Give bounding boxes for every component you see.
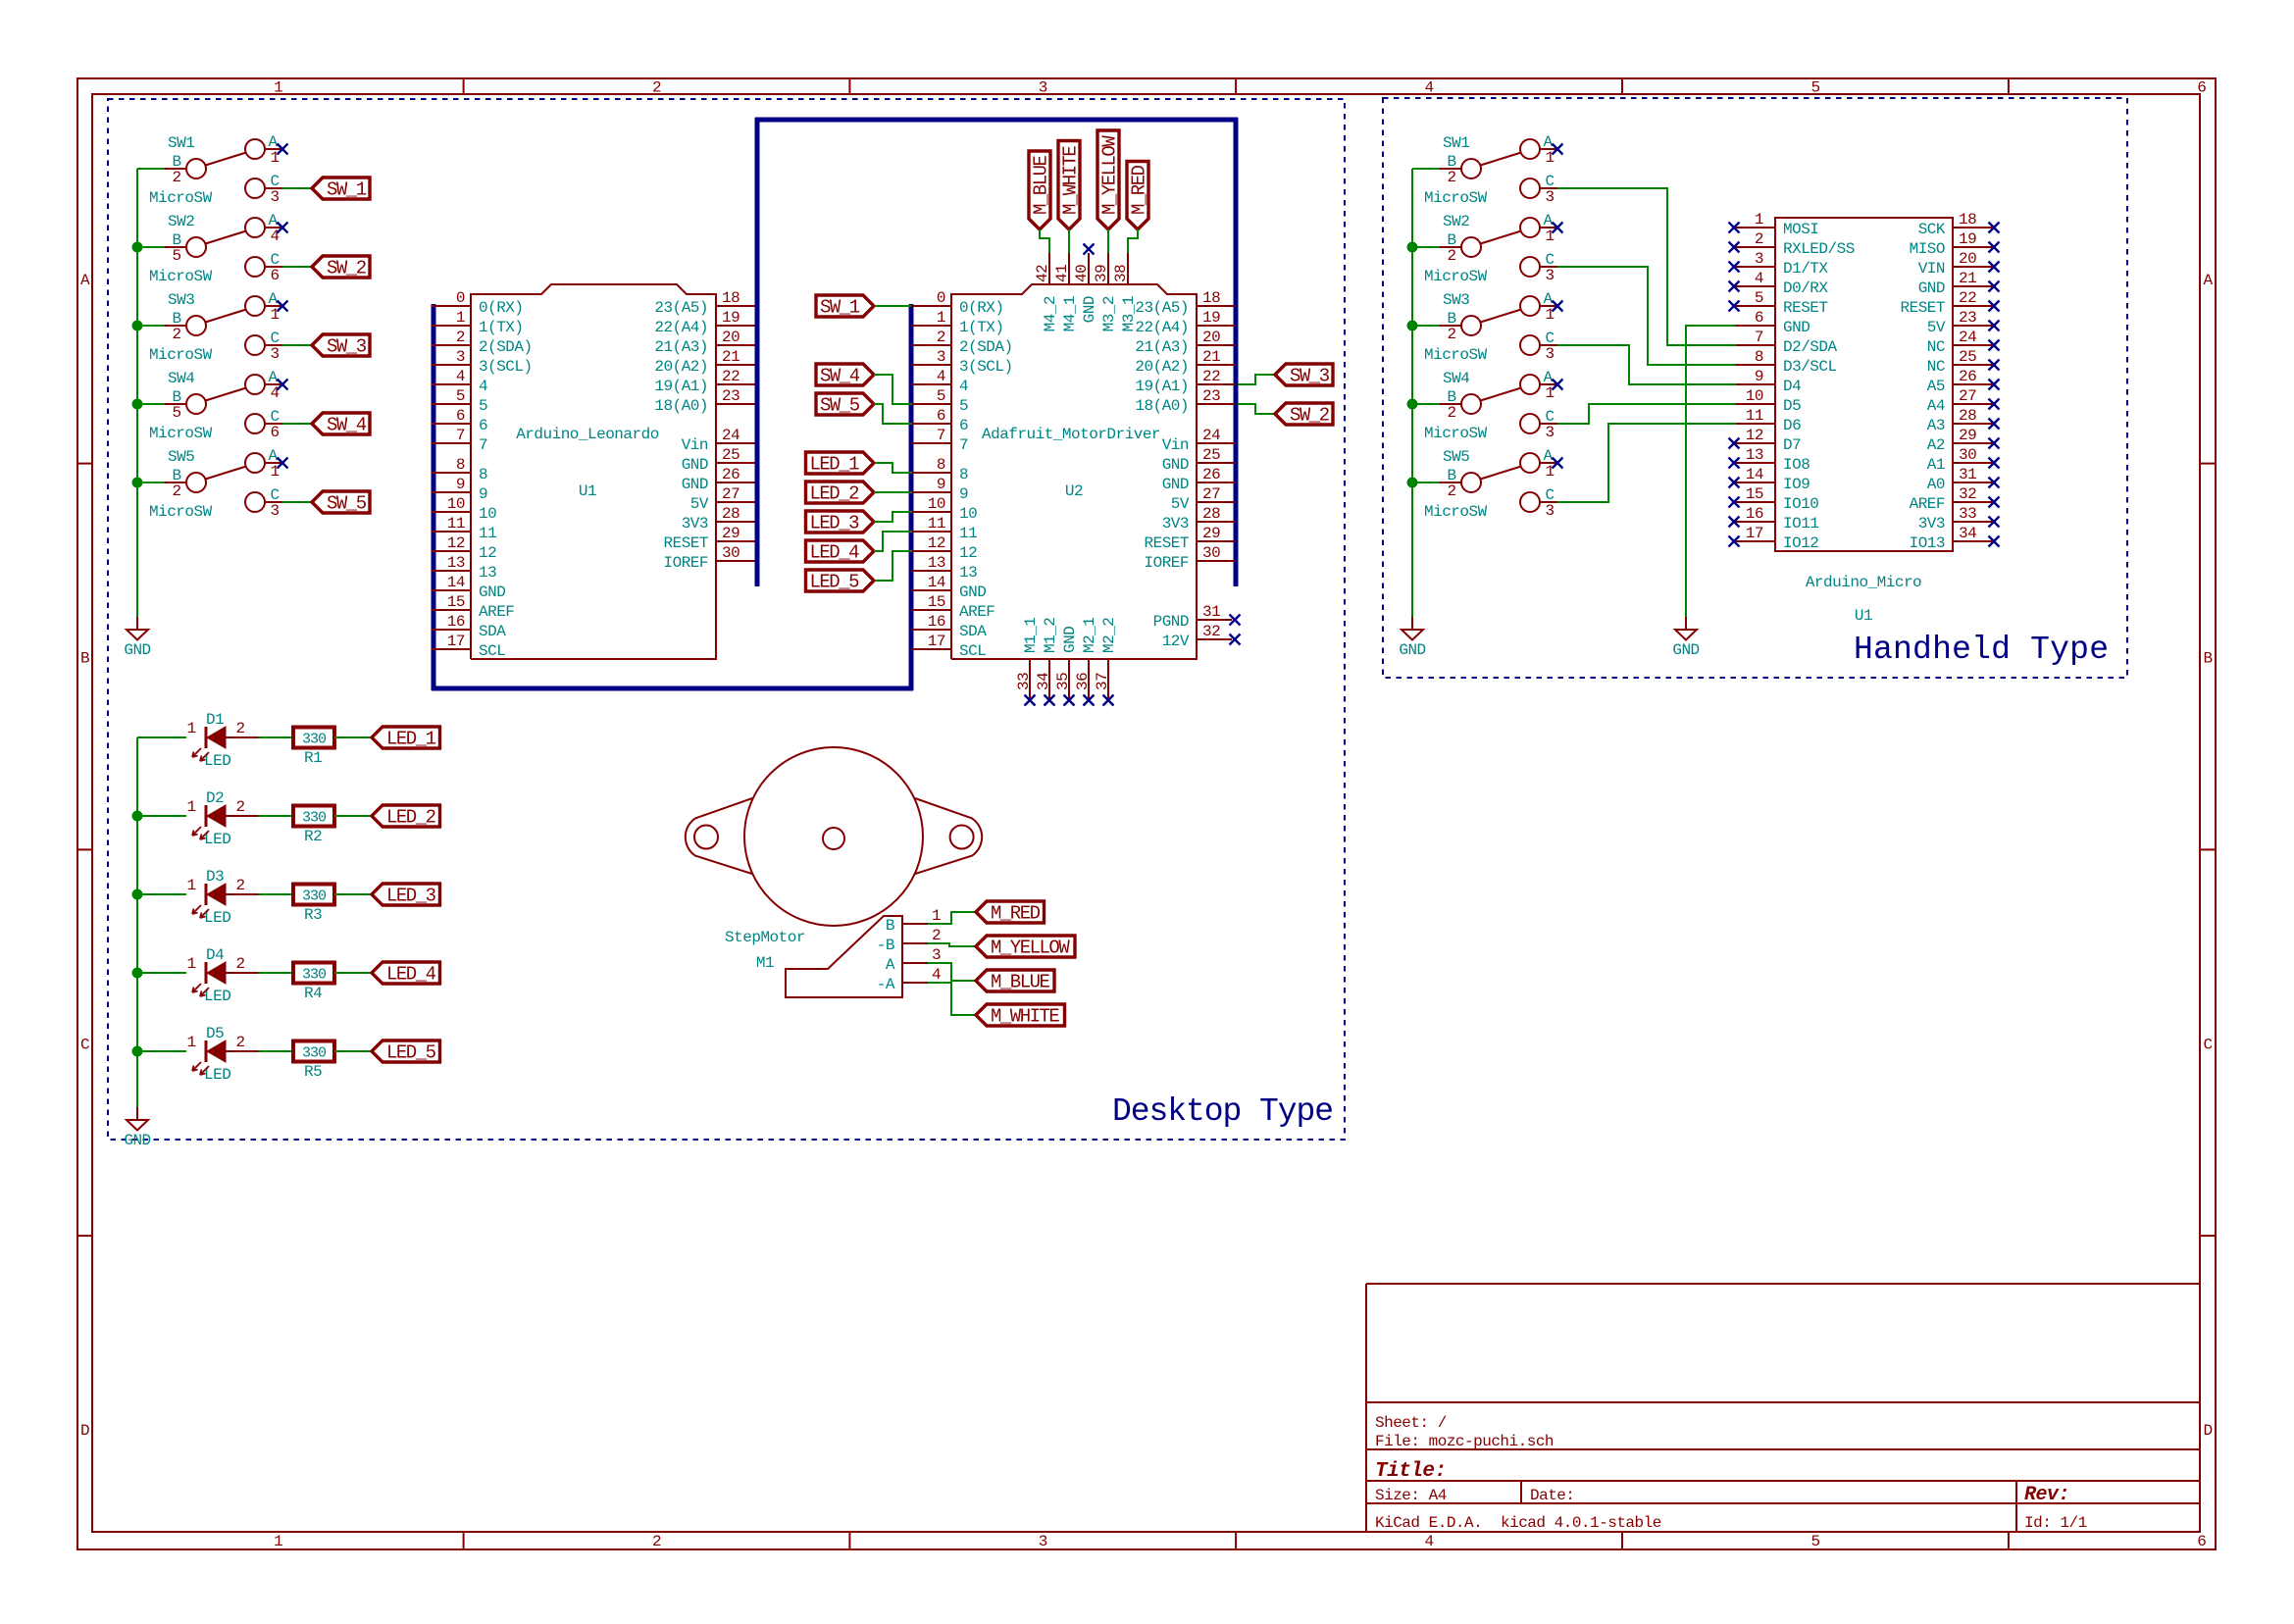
svg-text:SW1: SW1: [168, 134, 194, 152]
svg-text:3: 3: [270, 188, 279, 206]
svg-text:GND: GND: [682, 476, 708, 493]
svg-text:3: 3: [1545, 345, 1554, 363]
svg-text:SW5: SW5: [168, 448, 194, 466]
svg-text:SCK: SCK: [1918, 221, 1946, 238]
svg-text:D6: D6: [1783, 417, 1801, 434]
svg-text:A: A: [80, 272, 90, 289]
svg-text:8: 8: [456, 456, 465, 474]
svg-text:RESET: RESET: [663, 534, 708, 552]
svg-text:KiCad E.D.A.: KiCad E.D.A.: [1375, 1514, 1482, 1532]
svg-text:VIN: VIN: [1918, 260, 1945, 278]
svg-text:Id: 1/1: Id: 1/1: [2024, 1514, 2087, 1532]
svg-text:3(SCL): 3(SCL): [959, 358, 1013, 376]
svg-text:Desktop Type: Desktop Type: [1112, 1093, 1334, 1130]
svg-text:D0/RX: D0/RX: [1783, 279, 1828, 297]
svg-text:5: 5: [937, 387, 945, 405]
svg-text:R4: R4: [304, 985, 322, 1002]
svg-text:M_BLUE: M_BLUE: [1031, 155, 1052, 215]
svg-text:NC: NC: [1927, 358, 1945, 376]
svg-text:12V: 12V: [1162, 633, 1190, 650]
svg-text:38: 38: [1112, 265, 1130, 282]
svg-text:D7: D7: [1783, 436, 1801, 454]
svg-text:D5: D5: [206, 1025, 224, 1042]
svg-text:5: 5: [959, 397, 968, 415]
svg-text:26: 26: [1959, 368, 1976, 385]
svg-text:32: 32: [1959, 485, 1976, 503]
svg-text:26: 26: [722, 466, 739, 483]
svg-text:IO10: IO10: [1783, 495, 1818, 513]
svg-text:2: 2: [1447, 247, 1455, 265]
svg-text:0: 0: [456, 289, 465, 307]
svg-text:LED_3: LED_3: [810, 513, 860, 534]
svg-text:GND: GND: [682, 456, 708, 474]
svg-text:25: 25: [722, 446, 739, 464]
svg-text:GND: GND: [1061, 627, 1079, 653]
svg-text:GND: GND: [1918, 279, 1945, 297]
svg-text:0(RX): 0(RX): [959, 299, 1004, 317]
svg-text:13: 13: [447, 554, 465, 572]
svg-text:SW3: SW3: [168, 291, 194, 309]
svg-text:LED_1: LED_1: [810, 454, 860, 476]
svg-text:M_YELLOW: M_YELLOW: [1099, 135, 1121, 215]
svg-text:11: 11: [447, 515, 465, 533]
svg-text:SW_5: SW_5: [820, 395, 860, 417]
svg-text:42: 42: [1034, 265, 1051, 282]
svg-text:GND: GND: [479, 584, 505, 601]
svg-text:SW5: SW5: [1443, 448, 1469, 466]
svg-text:18: 18: [1202, 289, 1220, 307]
svg-text:D5: D5: [1783, 397, 1801, 415]
svg-text:22(A4): 22(A4): [1135, 319, 1189, 336]
svg-text:3: 3: [1039, 79, 1047, 97]
svg-text:23: 23: [1202, 387, 1220, 405]
svg-text:D4: D4: [206, 946, 224, 964]
svg-text:22(A4): 22(A4): [654, 319, 708, 336]
svg-text:30: 30: [1202, 544, 1220, 562]
svg-text:7: 7: [456, 427, 465, 444]
svg-text:5: 5: [172, 247, 180, 265]
svg-text:6: 6: [959, 417, 968, 434]
svg-text:M_WHITE: M_WHITE: [1060, 146, 1082, 215]
svg-text:6: 6: [479, 417, 487, 434]
svg-text:2: 2: [235, 955, 244, 973]
svg-text:1: 1: [274, 79, 282, 97]
svg-text:34: 34: [1035, 673, 1052, 690]
svg-text:R5: R5: [304, 1063, 322, 1081]
svg-text:Arduino_Micro: Arduino_Micro: [1806, 574, 1921, 591]
svg-text:Title:: Title:: [1375, 1460, 1447, 1483]
svg-text:LED: LED: [204, 1066, 230, 1084]
svg-text:19: 19: [1959, 230, 1976, 248]
svg-text:14: 14: [928, 574, 945, 591]
svg-text:4: 4: [479, 378, 487, 395]
svg-text:5: 5: [479, 397, 487, 415]
svg-text:U1: U1: [579, 482, 596, 500]
svg-text:M1_2: M1_2: [1042, 618, 1059, 653]
svg-text:MicroSW: MicroSW: [1424, 189, 1488, 207]
svg-text:SW3: SW3: [1443, 291, 1469, 309]
svg-text:21(A3): 21(A3): [1135, 338, 1189, 356]
svg-text:M1_1: M1_1: [1022, 618, 1040, 653]
svg-text:36: 36: [1074, 673, 1092, 690]
svg-text:31: 31: [1202, 603, 1220, 621]
svg-text:U2: U2: [1065, 482, 1083, 500]
svg-text:19(A1): 19(A1): [654, 378, 708, 395]
svg-text:IO8: IO8: [1783, 456, 1810, 474]
svg-text:LED_1: LED_1: [386, 729, 436, 750]
svg-text:2: 2: [937, 329, 945, 346]
svg-text:39: 39: [1093, 265, 1110, 282]
svg-text:6: 6: [1755, 309, 1763, 327]
svg-text:13: 13: [479, 564, 496, 582]
svg-text:MOSI: MOSI: [1783, 221, 1818, 238]
svg-text:GND: GND: [1399, 641, 1425, 659]
svg-text:IO12: IO12: [1783, 534, 1818, 552]
svg-text:4: 4: [456, 368, 465, 385]
svg-text:2: 2: [932, 927, 941, 944]
svg-text:LED_4: LED_4: [810, 542, 860, 564]
svg-text:18: 18: [1959, 211, 1976, 228]
svg-text:1: 1: [186, 877, 195, 894]
svg-text:RESET: RESET: [1783, 299, 1828, 317]
svg-text:SW2: SW2: [168, 213, 194, 230]
svg-text:M4_2: M4_2: [1042, 296, 1059, 331]
svg-text:MicroSW: MicroSW: [1424, 425, 1488, 442]
svg-text:5: 5: [456, 387, 465, 405]
svg-text:8: 8: [937, 456, 945, 474]
svg-text:SDA: SDA: [959, 623, 987, 640]
svg-text:1: 1: [1545, 228, 1554, 245]
svg-text:3: 3: [456, 348, 465, 366]
svg-text:13: 13: [928, 554, 945, 572]
svg-text:4: 4: [270, 384, 279, 402]
svg-text:19(A1): 19(A1): [1135, 378, 1189, 395]
svg-text:LED_2: LED_2: [386, 807, 436, 829]
svg-text:12: 12: [928, 534, 945, 552]
svg-text:6: 6: [2197, 1533, 2206, 1550]
svg-text:1: 1: [270, 149, 279, 167]
svg-text:-A: -A: [877, 976, 895, 993]
svg-text:12: 12: [1746, 427, 1763, 444]
svg-text:1: 1: [1545, 463, 1554, 481]
svg-text:M_YELLOW: M_YELLOW: [991, 938, 1070, 959]
svg-text:MicroSW: MicroSW: [1424, 346, 1488, 364]
svg-text:19: 19: [722, 309, 739, 327]
svg-text:D1/TX: D1/TX: [1783, 260, 1828, 278]
svg-text:1: 1: [270, 463, 279, 481]
svg-text:2: 2: [456, 329, 465, 346]
svg-text:34: 34: [1959, 525, 1976, 542]
svg-text:0(RX): 0(RX): [479, 299, 524, 317]
svg-text:8: 8: [959, 466, 968, 483]
svg-text:2: 2: [1447, 404, 1455, 422]
svg-text:25: 25: [1959, 348, 1976, 366]
svg-text:17: 17: [1746, 525, 1763, 542]
svg-text:18(A0): 18(A0): [654, 397, 708, 415]
svg-text:Adafruit_MotorDriver: Adafruit_MotorDriver: [982, 426, 1160, 443]
svg-text:MicroSW: MicroSW: [149, 189, 213, 207]
svg-text:A4: A4: [1927, 397, 1945, 415]
svg-text:M_BLUE: M_BLUE: [991, 972, 1050, 993]
svg-text:3: 3: [1545, 424, 1554, 441]
svg-text:LED_4: LED_4: [386, 964, 436, 986]
svg-text:D: D: [2203, 1422, 2212, 1440]
svg-text:kicad 4.0.1-stable: kicad 4.0.1-stable: [1501, 1514, 1661, 1532]
svg-text:IO11: IO11: [1783, 515, 1818, 533]
svg-text:20(A2): 20(A2): [1135, 358, 1189, 376]
svg-text:330: 330: [302, 810, 327, 827]
svg-text:9: 9: [937, 476, 945, 493]
svg-text:R1: R1: [304, 749, 322, 767]
svg-text:22: 22: [1959, 289, 1976, 307]
svg-text:SW_2: SW_2: [327, 258, 367, 279]
svg-text:StepMotor: StepMotor: [725, 929, 805, 946]
svg-text:Sheet: /: Sheet: /: [1375, 1414, 1447, 1432]
svg-text:4: 4: [1425, 79, 1434, 97]
svg-text:21: 21: [1202, 348, 1220, 366]
svg-text:1: 1: [270, 306, 279, 324]
svg-text:3V3: 3V3: [1162, 515, 1189, 533]
svg-text:3: 3: [1545, 267, 1554, 284]
svg-text:19: 19: [1202, 309, 1220, 327]
svg-text:2: 2: [1447, 169, 1455, 186]
svg-text:A1: A1: [1927, 456, 1945, 474]
svg-text:D1: D1: [206, 711, 224, 729]
svg-text:LED: LED: [204, 909, 230, 927]
svg-text:33: 33: [1959, 505, 1976, 523]
svg-text:10: 10: [479, 505, 496, 523]
svg-text:11: 11: [479, 525, 496, 542]
svg-text:LED: LED: [204, 988, 230, 1005]
svg-text:5: 5: [1755, 289, 1763, 307]
svg-text:3V3: 3V3: [1918, 515, 1945, 533]
svg-text:4: 4: [270, 228, 279, 245]
svg-text:5: 5: [1810, 79, 1819, 97]
svg-text:SW1: SW1: [1443, 134, 1469, 152]
svg-text:7: 7: [479, 436, 487, 454]
svg-text:2: 2: [1755, 230, 1763, 248]
svg-text:M3_1: M3_1: [1120, 296, 1138, 331]
svg-text:A: A: [2203, 272, 2213, 289]
svg-text:2: 2: [1447, 482, 1455, 500]
svg-text:14: 14: [447, 574, 465, 591]
svg-text:5V: 5V: [690, 495, 709, 513]
svg-text:24: 24: [722, 427, 739, 444]
svg-text:GND: GND: [1672, 641, 1699, 659]
svg-text:M1: M1: [756, 954, 774, 972]
svg-text:AREF: AREF: [479, 603, 514, 621]
svg-text:3: 3: [932, 946, 941, 964]
svg-text:Rev:: Rev:: [2024, 1484, 2069, 1506]
svg-text:M_RED: M_RED: [991, 903, 1041, 925]
svg-text:22: 22: [722, 368, 739, 385]
svg-text:3: 3: [1039, 1533, 1047, 1550]
svg-text:7: 7: [937, 427, 945, 444]
svg-text:GND: GND: [124, 641, 150, 659]
svg-text:M3_2: M3_2: [1100, 296, 1118, 331]
svg-text:MicroSW: MicroSW: [149, 346, 213, 364]
svg-text:32: 32: [1202, 623, 1220, 640]
svg-text:6: 6: [270, 424, 279, 441]
svg-text:SW_2: SW_2: [1290, 405, 1330, 427]
svg-text:Date:: Date:: [1530, 1487, 1575, 1504]
svg-text:1: 1: [274, 1533, 282, 1550]
svg-text:M_WHITE: M_WHITE: [991, 1006, 1059, 1028]
svg-text:M_RED: M_RED: [1129, 165, 1150, 215]
svg-text:2(SDA): 2(SDA): [479, 338, 533, 356]
svg-text:MicroSW: MicroSW: [149, 425, 213, 442]
svg-text:20: 20: [1202, 329, 1220, 346]
svg-text:10: 10: [959, 505, 977, 523]
svg-text:16: 16: [928, 613, 945, 631]
svg-text:SCL: SCL: [479, 642, 505, 660]
svg-text:11: 11: [959, 525, 977, 542]
svg-text:0: 0: [937, 289, 945, 307]
svg-text:11: 11: [1746, 407, 1763, 425]
svg-text:-B: -B: [877, 937, 894, 954]
svg-text:3: 3: [270, 502, 279, 520]
svg-text:1: 1: [1545, 306, 1554, 324]
svg-text:RESET: RESET: [1900, 299, 1945, 317]
svg-text:SW_3: SW_3: [327, 336, 367, 358]
svg-text:Vin: Vin: [1162, 436, 1189, 454]
svg-text:GND: GND: [1081, 296, 1098, 323]
svg-text:A5: A5: [1927, 378, 1945, 395]
svg-text:4: 4: [1755, 270, 1763, 287]
svg-text:GND: GND: [1162, 476, 1189, 493]
svg-text:PGND: PGND: [1153, 613, 1189, 631]
svg-text:1: 1: [1545, 384, 1554, 402]
svg-text:3: 3: [1545, 502, 1554, 520]
svg-text:A3: A3: [1927, 417, 1945, 434]
svg-text:23: 23: [1959, 309, 1976, 327]
svg-text:330: 330: [302, 967, 327, 984]
svg-text:SCL: SCL: [959, 642, 986, 660]
svg-text:12: 12: [959, 544, 977, 562]
svg-text:B: B: [80, 650, 89, 668]
svg-text:A0: A0: [1927, 476, 1945, 493]
svg-text:17: 17: [928, 633, 945, 650]
svg-text:330: 330: [302, 732, 327, 748]
svg-text:LED: LED: [204, 752, 230, 770]
svg-text:D: D: [80, 1422, 89, 1440]
svg-text:SW_1: SW_1: [327, 179, 367, 201]
svg-text:30: 30: [722, 544, 739, 562]
svg-text:28: 28: [722, 505, 739, 523]
svg-text:LED_3: LED_3: [386, 886, 436, 907]
svg-text:18(A0): 18(A0): [1135, 397, 1189, 415]
svg-text:IO13: IO13: [1910, 534, 1945, 552]
svg-text:U1: U1: [1855, 607, 1872, 625]
svg-text:15: 15: [1746, 485, 1763, 503]
svg-text:30: 30: [1959, 446, 1976, 464]
svg-text:23(A5): 23(A5): [1135, 299, 1189, 317]
svg-text:27: 27: [1959, 387, 1976, 405]
svg-text:SW_4: SW_4: [327, 415, 367, 436]
svg-text:21(A3): 21(A3): [654, 338, 708, 356]
svg-text:4: 4: [937, 368, 945, 385]
svg-text:IO9: IO9: [1783, 476, 1810, 493]
svg-text:2: 2: [235, 720, 244, 737]
svg-text:29: 29: [1959, 427, 1976, 444]
svg-text:1: 1: [186, 955, 195, 973]
svg-text:23: 23: [722, 387, 739, 405]
svg-text:1(TX): 1(TX): [959, 319, 1004, 336]
svg-text:9: 9: [479, 485, 487, 503]
svg-text:A: A: [886, 956, 895, 974]
svg-text:Handheld Type: Handheld Type: [1854, 632, 2109, 668]
svg-text:2: 2: [235, 798, 244, 816]
svg-text:7: 7: [959, 436, 968, 454]
svg-text:14: 14: [1746, 466, 1763, 483]
svg-text:GND: GND: [959, 584, 986, 601]
svg-text:330: 330: [302, 888, 327, 905]
svg-text:16: 16: [447, 613, 465, 631]
svg-text:25: 25: [1202, 446, 1220, 464]
svg-text:20: 20: [722, 329, 739, 346]
svg-text:26: 26: [1202, 466, 1220, 483]
svg-text:33: 33: [1015, 673, 1033, 690]
svg-text:NC: NC: [1927, 338, 1945, 356]
svg-text:2: 2: [172, 169, 180, 186]
svg-text:IOREF: IOREF: [663, 554, 708, 572]
svg-text:M2_1: M2_1: [1081, 618, 1098, 653]
svg-text:21: 21: [722, 348, 739, 366]
svg-text:28: 28: [1202, 505, 1220, 523]
svg-text:GND: GND: [1162, 456, 1189, 474]
svg-text:9: 9: [959, 485, 968, 503]
svg-text:27: 27: [1202, 485, 1220, 503]
svg-text:15: 15: [928, 593, 945, 611]
svg-text:22: 22: [1202, 368, 1220, 385]
svg-text:2: 2: [235, 1034, 244, 1051]
svg-text:2(SDA): 2(SDA): [959, 338, 1013, 356]
svg-text:LED_5: LED_5: [386, 1042, 436, 1064]
svg-text:SDA: SDA: [479, 623, 506, 640]
svg-text:3: 3: [1755, 250, 1763, 268]
svg-text:6: 6: [270, 267, 279, 284]
svg-text:SW4: SW4: [168, 370, 194, 387]
svg-text:IOREF: IOREF: [1144, 554, 1189, 572]
svg-text:D2: D2: [206, 789, 224, 807]
svg-text:29: 29: [1202, 525, 1220, 542]
svg-text:3V3: 3V3: [682, 515, 708, 533]
svg-text:1: 1: [1545, 149, 1554, 167]
svg-text:10: 10: [928, 495, 945, 513]
svg-text:40: 40: [1073, 265, 1091, 282]
svg-text:6: 6: [2197, 79, 2206, 97]
svg-text:7: 7: [1755, 329, 1763, 346]
svg-text:1: 1: [932, 907, 941, 925]
svg-text:12: 12: [447, 534, 465, 552]
svg-text:20: 20: [1959, 250, 1976, 268]
svg-text:330: 330: [302, 1045, 327, 1062]
svg-text:3: 3: [1545, 188, 1554, 206]
svg-text:8: 8: [1755, 348, 1763, 366]
svg-text:1: 1: [1755, 211, 1763, 228]
svg-text:9: 9: [1755, 368, 1763, 385]
svg-text:5V: 5V: [1171, 495, 1190, 513]
svg-text:LED_5: LED_5: [810, 572, 860, 593]
svg-text:2: 2: [172, 326, 180, 343]
svg-text:B: B: [2203, 650, 2212, 668]
svg-text:8: 8: [479, 466, 487, 483]
svg-text:C: C: [2203, 1036, 2212, 1053]
svg-text:2: 2: [1447, 326, 1455, 343]
svg-text:5: 5: [1810, 1533, 1819, 1550]
svg-text:6: 6: [456, 407, 465, 425]
svg-text:GND: GND: [124, 1132, 150, 1149]
